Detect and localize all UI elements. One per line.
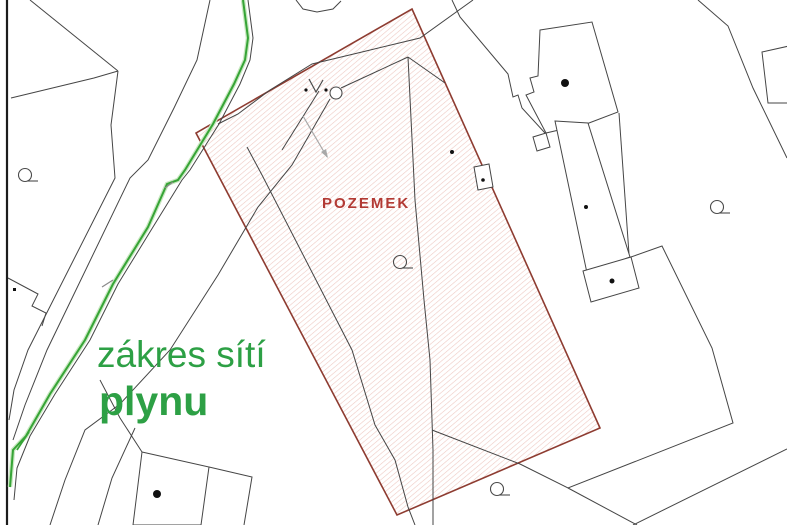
cadastre-line bbox=[98, 428, 135, 525]
building-top-right bbox=[526, 22, 618, 133]
gas-legend-text-line1: zákres sítí bbox=[97, 336, 266, 373]
building-dot bbox=[610, 279, 615, 284]
map-svg bbox=[0, 0, 787, 525]
building-strip bbox=[555, 121, 630, 273]
building-dot bbox=[481, 178, 485, 182]
building-square-dot bbox=[13, 288, 16, 291]
cadastre-line bbox=[30, 0, 118, 71]
building-dot bbox=[561, 79, 569, 87]
cadastre-line bbox=[452, 0, 545, 133]
building-dot bbox=[450, 150, 454, 154]
building-right-edge bbox=[762, 46, 787, 103]
building-tiny bbox=[474, 164, 493, 190]
circle-tail-symbol bbox=[19, 169, 39, 182]
building-dot bbox=[304, 88, 307, 91]
building-dot bbox=[153, 490, 161, 498]
point-circle-symbol bbox=[330, 87, 342, 99]
map-canvas: POZEMEK zákres sítí plynu bbox=[0, 0, 787, 525]
cadastre-line bbox=[11, 71, 118, 98]
gas-legend-text-line2: plynu bbox=[99, 381, 208, 422]
cadastre-line bbox=[633, 449, 787, 525]
cadastre-line bbox=[8, 278, 46, 326]
building-top-right-notch bbox=[533, 133, 550, 151]
cadastre-line bbox=[296, 0, 341, 12]
cadastre-line bbox=[209, 467, 252, 525]
circle-tail-symbol bbox=[711, 201, 731, 214]
building-dot bbox=[584, 205, 588, 209]
parcel-label: POZEMEK bbox=[322, 196, 410, 211]
circle-tail-symbol bbox=[491, 483, 511, 496]
building-bottom bbox=[133, 452, 209, 525]
cadastre-line bbox=[568, 488, 637, 525]
building-dot bbox=[324, 88, 327, 91]
